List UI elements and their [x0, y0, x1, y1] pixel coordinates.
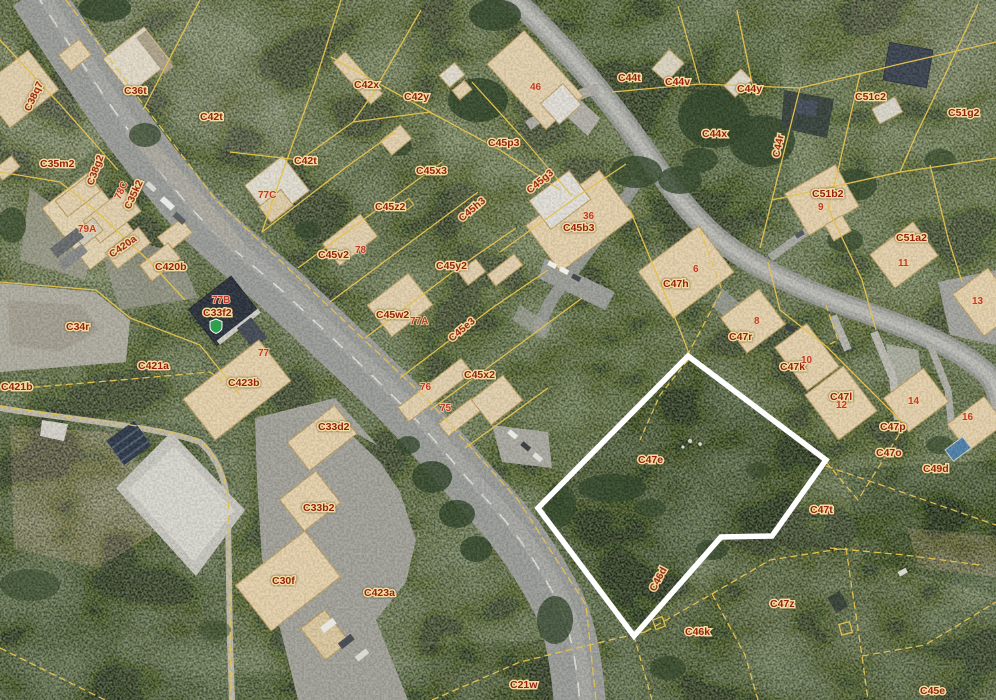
svg-text:77A: 77A — [410, 316, 428, 327]
svg-text:C42t: C42t — [200, 111, 223, 123]
svg-text:C51c2: C51c2 — [855, 91, 886, 103]
svg-text:C44y: C44y — [737, 83, 762, 95]
svg-text:C423b: C423b — [228, 377, 260, 389]
svg-text:C49d: C49d — [923, 463, 949, 475]
svg-text:C44v: C44v — [665, 76, 690, 88]
svg-text:C45z2: C45z2 — [375, 201, 406, 213]
svg-text:79A: 79A — [78, 224, 96, 235]
svg-text:78: 78 — [355, 245, 367, 256]
svg-text:9: 9 — [818, 202, 824, 213]
svg-text:C45x3: C45x3 — [416, 165, 447, 177]
svg-text:C47e: C47e — [638, 454, 663, 466]
svg-text:C45y2: C45y2 — [436, 260, 467, 272]
svg-text:C30f: C30f — [272, 575, 295, 587]
svg-text:77C: 77C — [258, 190, 276, 201]
svg-text:12: 12 — [836, 400, 848, 411]
svg-text:75: 75 — [440, 403, 452, 414]
svg-text:C47o: C47o — [876, 447, 902, 459]
svg-text:8: 8 — [754, 316, 760, 327]
svg-text:C47p: C47p — [880, 421, 906, 433]
svg-text:C42t: C42t — [294, 155, 317, 167]
svg-text:C45p3: C45p3 — [488, 137, 520, 149]
svg-text:C47h: C47h — [663, 278, 689, 290]
svg-text:6: 6 — [693, 264, 699, 275]
svg-text:C21w: C21w — [510, 679, 538, 691]
svg-text:C47r: C47r — [729, 331, 752, 343]
svg-text:C33d2: C33d2 — [318, 421, 350, 433]
svg-text:C45v2: C45v2 — [318, 249, 349, 261]
svg-text:C33b2: C33b2 — [303, 502, 335, 514]
svg-text:C46k: C46k — [685, 626, 710, 638]
svg-text:C51b2: C51b2 — [812, 188, 844, 200]
svg-text:C36t: C36t — [124, 85, 147, 97]
svg-text:C421a: C421a — [138, 360, 169, 372]
svg-text:C44x: C44x — [702, 128, 727, 140]
svg-text:C33f2: C33f2 — [203, 307, 232, 319]
svg-text:C35m2: C35m2 — [40, 158, 75, 170]
svg-text:77: 77 — [258, 348, 270, 359]
svg-text:16: 16 — [962, 412, 974, 423]
svg-text:C34r: C34r — [66, 321, 89, 333]
svg-text:C45w2: C45w2 — [376, 309, 409, 321]
svg-text:C423a: C423a — [364, 587, 395, 599]
svg-text:46: 46 — [530, 82, 542, 93]
svg-text:76: 76 — [420, 382, 432, 393]
svg-text:10: 10 — [801, 355, 813, 366]
svg-text:C51g2: C51g2 — [948, 107, 980, 119]
svg-text:C47t: C47t — [810, 504, 833, 516]
svg-text:C45e: C45e — [920, 685, 945, 697]
svg-text:14: 14 — [908, 396, 920, 407]
svg-text:C421b: C421b — [1, 381, 33, 393]
svg-text:C45x2: C45x2 — [464, 369, 495, 381]
svg-text:C51a2: C51a2 — [896, 232, 927, 244]
svg-text:77B: 77B — [212, 295, 230, 306]
svg-text:13: 13 — [972, 296, 984, 307]
svg-text:C420b: C420b — [155, 261, 187, 273]
svg-text:11: 11 — [898, 258, 909, 269]
svg-text:C45b3: C45b3 — [563, 222, 595, 234]
svg-text:C42y: C42y — [404, 91, 429, 103]
svg-text:C47z: C47z — [770, 598, 795, 610]
svg-text:C44t: C44t — [618, 72, 641, 84]
svg-text:C42x: C42x — [354, 79, 379, 91]
svg-text:36: 36 — [583, 211, 595, 222]
